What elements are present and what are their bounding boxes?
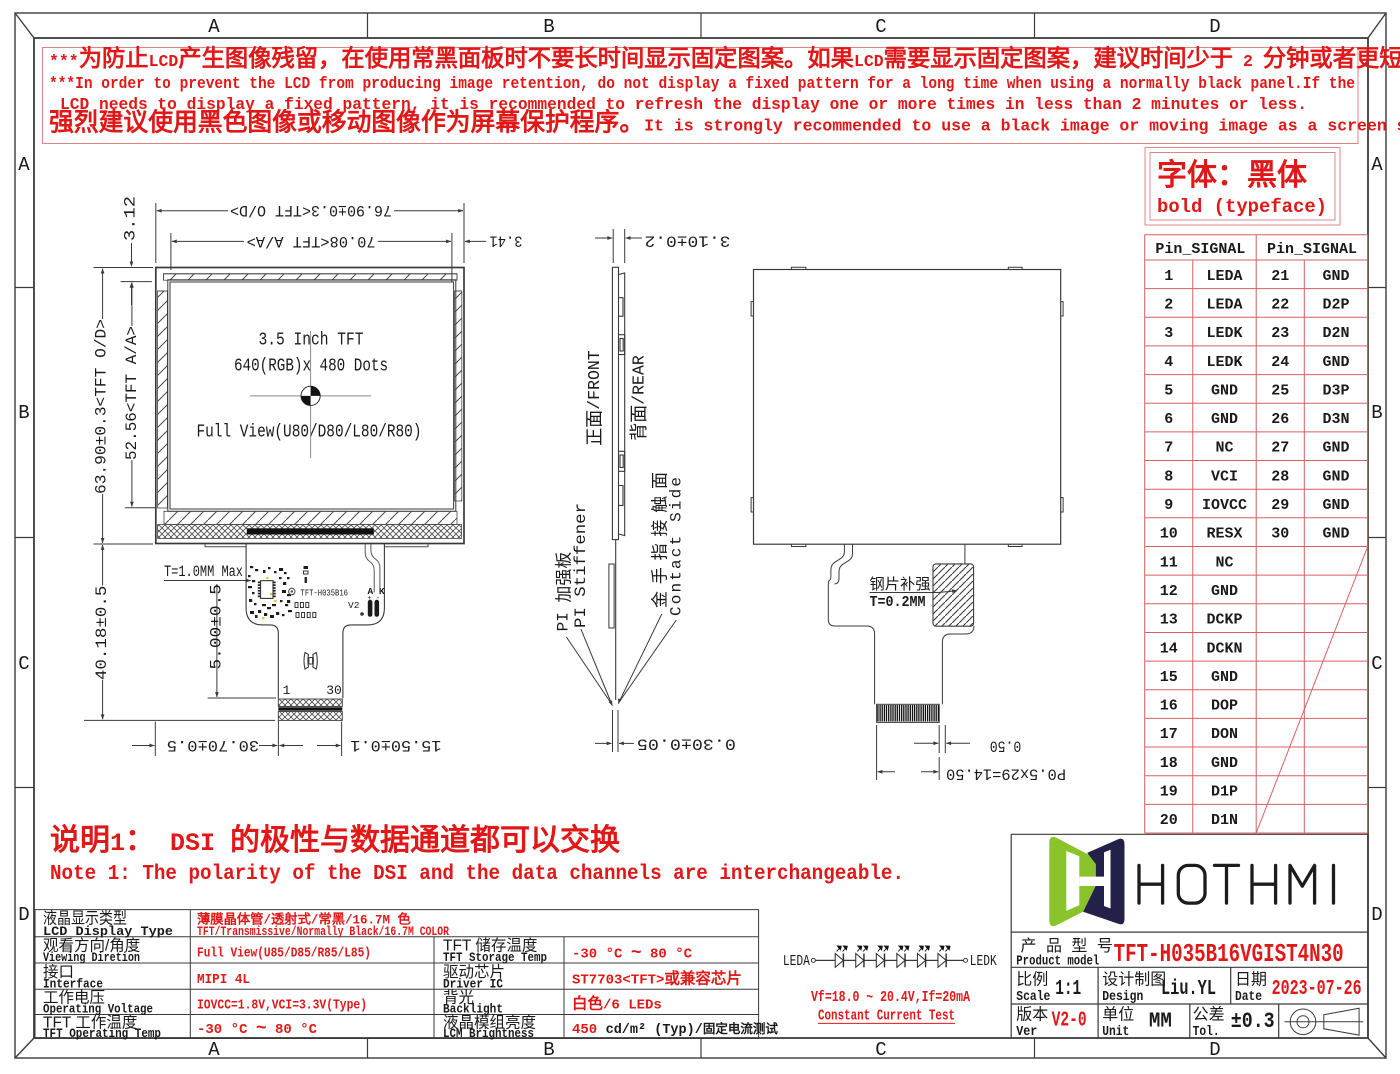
svg-text:D3P: D3P [1322,382,1349,399]
svg-text:3.41: 3.41 [490,232,523,250]
svg-text:1:1: 1:1 [1055,978,1081,1001]
svg-text:GND: GND [1322,526,1349,543]
svg-text:3: 3 [1164,325,1173,342]
svg-text:14: 14 [1160,640,1178,657]
svg-text:TFT Operating Temp: TFT Operating Temp [43,1027,161,1041]
svg-text:A: A [208,16,220,38]
svg-text:PI Stiffener: PI Stiffener [572,503,590,628]
svg-text:TFT-H035B16: TFT-H035B16 [301,588,349,599]
svg-text:D: D [1209,1039,1220,1061]
svg-text:19: 19 [1160,784,1178,801]
svg-text:70.08<TFT A/A>: 70.08<TFT A/A> [247,232,376,250]
svg-text:LEDK: LEDK [1206,354,1242,371]
svg-text:1: 1 [1164,268,1173,285]
svg-text:27: 27 [1271,440,1289,457]
svg-text:正面/FRONT: 正面/FRONT [585,350,605,446]
svg-text:比例: 比例 [1016,971,1048,989]
svg-text:DCKP: DCKP [1206,612,1242,629]
svg-text:***为防止LCD产生图像残留，在使用常黑面板时不要长时间显: ***为防止LCD产生图像残留，在使用常黑面板时不要长时间显示固定图案。如果LC… [49,44,1400,71]
svg-text:RESX: RESX [1206,526,1242,543]
svg-text:LEDA: LEDA [783,954,810,970]
svg-text:日期: 日期 [1235,971,1267,989]
svg-text:LEDK: LEDK [1206,325,1242,342]
svg-text:IOVCC=1.8V,VCI=3.3V(Type): IOVCC=1.8V,VCI=3.3V(Type) [197,998,367,1014]
svg-text:产 品 型 号: 产 品 型 号 [1021,937,1116,955]
svg-text:GND: GND [1211,755,1238,772]
svg-text:Unit: Unit [1102,1024,1129,1040]
svg-text:设计制图: 设计制图 [1102,971,1166,989]
svg-text:Date: Date [1235,989,1262,1005]
svg-text:***In order to prevent the LCD: ***In order to prevent the LCD from prod… [49,74,1355,93]
svg-text:bold (typeface): bold (typeface) [1157,196,1327,218]
svg-text:A: A [208,1039,220,1061]
svg-text:P0.5x29=14.50: P0.5x29=14.50 [946,765,1066,783]
svg-text:Ver: Ver [1016,1024,1037,1040]
svg-text:450 cd/m² (Typ)/固定电流测试: 450 cd/m² (Typ)/固定电流测试 [572,1021,778,1038]
svg-text:B: B [1371,402,1382,424]
svg-text:-30 °C ~ 80 °C: -30 °C ~ 80 °C [197,1019,318,1039]
svg-text:5: 5 [1164,382,1173,399]
svg-text:1: 1 [283,683,291,698]
svg-text:B: B [543,16,554,38]
svg-text:18: 18 [1160,755,1178,772]
svg-text:Tol.: Tol. [1193,1024,1220,1040]
svg-text:Product model: Product model [1016,954,1099,970]
svg-text:Full View(U80/D80/L80/R80): Full View(U80/D80/L80/R80) [197,423,422,443]
svg-text:29: 29 [1271,497,1289,514]
svg-text:VCI: VCI [1211,468,1238,485]
svg-text:LEDA: LEDA [1206,297,1242,314]
svg-text:21: 21 [1271,268,1289,285]
svg-text:7: 7 [1164,440,1173,457]
svg-text:D2P: D2P [1322,297,1349,314]
svg-text:16: 16 [1160,698,1178,715]
svg-text:0.30±0.05: 0.30±0.05 [637,734,736,752]
svg-text:3.12: 3.12 [122,196,140,241]
svg-text:Constant Current Test: Constant Current Test [818,1009,955,1025]
svg-text:GND: GND [1211,382,1238,399]
svg-text:D2N: D2N [1322,325,1349,342]
svg-text:LCM Brightness: LCM Brightness [443,1027,534,1041]
svg-text:D1P: D1P [1211,784,1238,801]
svg-text:TFT/Transmissive/Normally Blac: TFT/Transmissive/Normally Black/16.7M CO… [197,925,449,939]
svg-text:15.50±0.1: 15.50±0.1 [350,736,441,754]
svg-text:单位: 单位 [1102,1006,1134,1024]
svg-text:±0.3: ±0.3 [1231,1009,1275,1034]
svg-text:D1N: D1N [1211,812,1238,829]
svg-text:GND: GND [1322,497,1349,514]
svg-text:钢片补强: 钢片补强 [870,576,931,593]
svg-text:30: 30 [326,683,342,698]
svg-text:28: 28 [1271,468,1289,485]
svg-text:-30 °C ~ 80 °C: -30 °C ~ 80 °C [572,944,693,964]
svg-text:26: 26 [1271,411,1289,428]
svg-text:IOVCC: IOVCC [1202,497,1247,514]
svg-text:22: 22 [1271,297,1289,314]
svg-text:8: 8 [1164,468,1173,485]
svg-text:NC: NC [1215,554,1233,571]
svg-text:公差: 公差 [1193,1006,1225,1024]
svg-text:T=1.0MM Max: T=1.0MM Max [164,563,243,581]
svg-text:版本: 版本 [1016,1006,1048,1024]
svg-text:GND: GND [1211,411,1238,428]
svg-text:V2: V2 [348,600,360,611]
svg-text:2: 2 [1164,297,1173,314]
svg-text:0.50: 0.50 [990,737,1022,755]
svg-text:Design: Design [1102,989,1143,1005]
svg-text:LEDK: LEDK [970,954,997,970]
svg-text:C: C [1371,653,1382,675]
svg-text:说明1： DSI 的极性与数据通道都可以交换: 说明1： DSI 的极性与数据通道都可以交换 [50,823,621,858]
svg-text:DCKN: DCKN [1206,640,1242,657]
svg-text:Full View(U85/D85/R85/L85): Full View(U85/D85/R85/L85) [197,946,371,962]
svg-text:17: 17 [1160,726,1178,743]
svg-text:D: D [1209,16,1220,38]
svg-text:Viewing Diretion: Viewing Diretion [43,951,140,965]
svg-text:C: C [875,1039,886,1061]
svg-text:TFT Storage Temp: TFT Storage Temp [443,951,547,965]
svg-text:GND: GND [1322,268,1349,285]
svg-text:MIPI 4L: MIPI 4L [197,972,250,988]
svg-text:A: A [1371,154,1383,176]
svg-text:背面/REAR: 背面/REAR [629,355,649,441]
svg-text:9: 9 [1164,497,1173,514]
svg-text:13: 13 [1160,612,1178,629]
svg-text:10: 10 [1160,526,1178,543]
svg-text:23: 23 [1271,325,1289,342]
svg-text:76.90±0.3<TFT O/D>: 76.90±0.3<TFT O/D> [230,201,392,219]
svg-text:PI 加强板: PI 加强板 [554,552,573,632]
svg-text:Vf=18.0 ~ 20.4V,If=20mA: Vf=18.0 ~ 20.4V,If=20mA [811,990,970,1006]
svg-text:4: 4 [1164,354,1173,371]
svg-text:DON: DON [1211,726,1238,743]
svg-text:20: 20 [1160,812,1178,829]
svg-text:B: B [18,402,29,424]
svg-text:2023-07-26: 2023-07-26 [1272,978,1362,1001]
svg-text:GND: GND [1322,440,1349,457]
svg-text:GND: GND [1211,669,1238,686]
svg-text:A: A [18,154,30,176]
svg-text:V2-0: V2-0 [1052,1010,1087,1033]
svg-text:LEDA: LEDA [1206,268,1242,285]
svg-text:3.10±0.2: 3.10±0.2 [645,231,731,249]
svg-text:25: 25 [1271,382,1289,399]
svg-text:Note 1: The polarity of the DS: Note 1: The polarity of the DSI and the … [50,863,904,886]
svg-text:40.18±0.5: 40.18±0.5 [93,586,111,681]
svg-text:T=0.2MM: T=0.2MM [870,595,926,611]
svg-text:字体：黑体: 字体：黑体 [1157,158,1308,192]
svg-text:D: D [1371,904,1382,926]
svg-text:Scale: Scale [1016,989,1050,1005]
svg-text:GND: GND [1322,468,1349,485]
svg-text:TFT-H035B16VGIST4N30: TFT-H035B16VGIST4N30 [1114,939,1344,969]
svg-text:63.90±0.3<TFT O/D>: 63.90±0.3<TFT O/D> [93,319,111,494]
svg-text:C: C [875,16,886,38]
svg-text:DOP: DOP [1211,698,1238,715]
svg-text:30: 30 [1271,526,1289,543]
svg-text:D3N: D3N [1322,411,1349,428]
svg-text:Pin_SIGNAL: Pin_SIGNAL [1155,241,1245,258]
svg-text:Liu.YL: Liu.YL [1161,978,1216,1001]
svg-text:GND: GND [1211,583,1238,600]
svg-text:MM: MM [1149,1011,1172,1034]
svg-text:5.00±0.5: 5.00±0.5 [208,584,226,670]
svg-text:D: D [18,904,29,926]
svg-text:NC: NC [1215,440,1233,457]
svg-text:15: 15 [1160,669,1178,686]
svg-text:Pin_SIGNAL: Pin_SIGNAL [1267,241,1357,258]
svg-text:B: B [543,1039,554,1061]
svg-text:52.56<TFT A/A>: 52.56<TFT A/A> [123,326,141,460]
svg-text:C: C [18,653,29,675]
svg-text:12: 12 [1160,583,1178,600]
svg-text:24: 24 [1271,354,1289,371]
svg-text:11: 11 [1160,554,1178,571]
svg-text:30.70±0.5: 30.70±0.5 [167,736,260,754]
svg-text:GND: GND [1322,354,1349,371]
svg-text:6: 6 [1164,411,1173,428]
